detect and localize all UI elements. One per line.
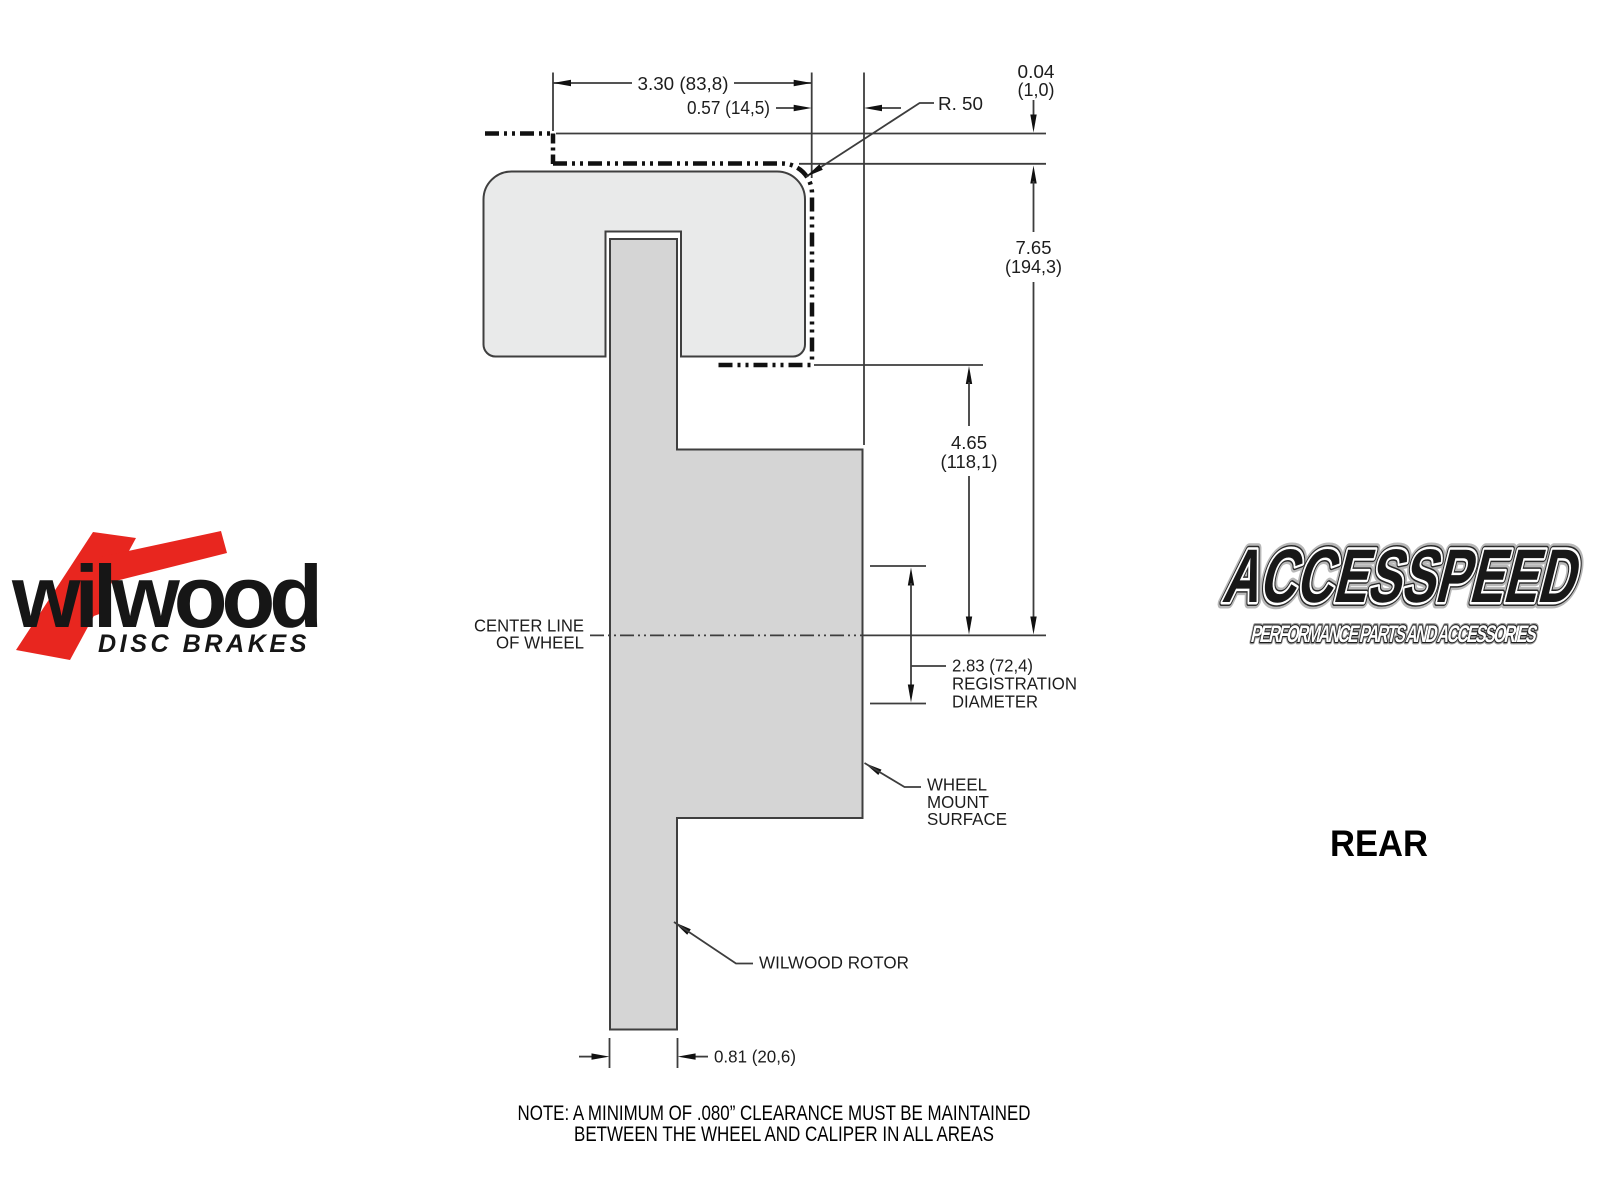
svg-text:4.65: 4.65 bbox=[951, 433, 987, 453]
svg-text:OF WHEEL: OF WHEEL bbox=[496, 633, 584, 653]
svg-text:NOTE: A MINIMUM OF .080” CLEAR: NOTE: A MINIMUM OF .080” CLEARANCE MUST … bbox=[518, 1102, 1031, 1125]
svg-text:R. 50: R. 50 bbox=[938, 94, 983, 114]
svg-text:WILWOOD ROTOR: WILWOOD ROTOR bbox=[759, 953, 909, 973]
svg-text:SURFACE: SURFACE bbox=[927, 809, 1007, 829]
svg-text:2.83 (72,4): 2.83 (72,4) bbox=[952, 656, 1033, 676]
svg-text:0.04: 0.04 bbox=[1018, 62, 1055, 82]
svg-text:ACCESSPEED: ACCESSPEED bbox=[1217, 534, 1590, 619]
svg-text:DISC BRAKES: DISC BRAKES bbox=[98, 630, 310, 658]
svg-text:REAR: REAR bbox=[1330, 823, 1428, 864]
svg-text:(194,3): (194,3) bbox=[1005, 257, 1062, 277]
svg-text:0.57 (14,5): 0.57 (14,5) bbox=[687, 98, 770, 118]
svg-text:3.30 (83,8): 3.30 (83,8) bbox=[638, 74, 729, 94]
svg-text:(118,1): (118,1) bbox=[941, 452, 998, 472]
svg-text:REGISTRATION: REGISTRATION bbox=[952, 674, 1077, 694]
svg-text:DIAMETER: DIAMETER bbox=[952, 692, 1038, 712]
svg-text:7.65: 7.65 bbox=[1016, 238, 1052, 258]
svg-text:BETWEEN THE WHEEL AND CALIPER: BETWEEN THE WHEEL AND CALIPER IN ALL ARE… bbox=[574, 1123, 994, 1146]
svg-text:PERFORMANCE PARTS AND ACCESSOR: PERFORMANCE PARTS AND ACCESSORIES bbox=[1249, 621, 1539, 648]
svg-text:(1,0): (1,0) bbox=[1018, 80, 1055, 100]
svg-text:0.81 (20,6): 0.81 (20,6) bbox=[714, 1047, 796, 1067]
